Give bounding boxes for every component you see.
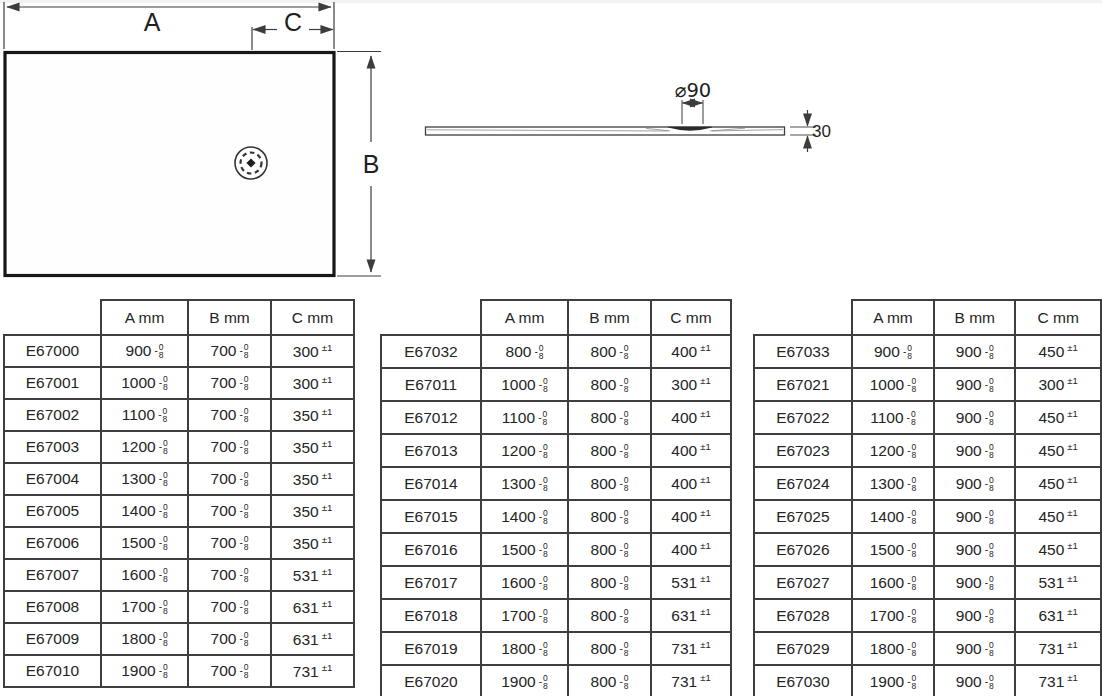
- product-code: E67019: [381, 632, 481, 665]
- dim-c-value: 731±1: [1015, 665, 1101, 696]
- product-code: E67015: [381, 500, 481, 533]
- dim-b-value: 700-08: [188, 623, 271, 655]
- dim-a-value: 1100-08: [481, 401, 568, 434]
- dim-a-value: 900-08: [101, 335, 188, 367]
- dim-a-value: 1200-08: [852, 434, 935, 467]
- dim-a-value: 1500-08: [481, 533, 568, 566]
- column-header: C mm: [651, 300, 731, 335]
- tolerance-plusminus: ±1: [322, 502, 333, 513]
- dim-a-value: 1600-08: [852, 566, 935, 599]
- product-code: E67001: [4, 367, 101, 399]
- tolerance-stack: -08: [619, 608, 628, 624]
- dim-a-value: 1900-08: [481, 665, 568, 696]
- table-row: E670051400-08700-08350±1: [4, 495, 354, 527]
- header-row: A mmB mmC mm: [381, 300, 731, 335]
- table-row: E670081700-08700-08631±1: [4, 591, 354, 623]
- dim-a-value: 1300-08: [481, 467, 568, 500]
- tolerance-plusminus: ±1: [1067, 474, 1078, 485]
- tolerance-stack: -08: [239, 663, 248, 679]
- product-code: E67017: [381, 566, 481, 599]
- tolerance-stack: -08: [985, 608, 994, 624]
- tolerance-plusminus: ±1: [322, 406, 333, 417]
- product-code: E67006: [4, 527, 101, 559]
- dim-b-value: 700-08: [188, 367, 271, 399]
- tolerance-stack: -08: [539, 674, 548, 690]
- table-row: E670101900-08700-08731±1: [4, 655, 354, 687]
- tolerance-plusminus: ±1: [1067, 672, 1078, 683]
- dim-b-value: 800-08: [568, 467, 651, 500]
- dim-b-value: 700-08: [188, 527, 271, 559]
- table-row: E670091800-08700-08631±1: [4, 623, 354, 655]
- dim-a-value: 1000-08: [852, 368, 935, 401]
- dim-a-value: 1500-08: [101, 527, 188, 559]
- dim-b-value: 700-08: [188, 655, 271, 687]
- table-row: E670131200-08800-08400±1: [381, 434, 731, 467]
- dim-a-value: 1800-08: [481, 632, 568, 665]
- dim-c-value: 631±1: [1015, 599, 1101, 632]
- tolerance-stack: -08: [154, 343, 163, 359]
- dim-c-value: 731±1: [651, 632, 731, 665]
- product-code: E67012: [381, 401, 481, 434]
- dim-a-value: 1300-08: [852, 467, 935, 500]
- dim-a-value: 1700-08: [101, 591, 188, 623]
- product-code: E67025: [754, 500, 852, 533]
- product-code: E67023: [754, 434, 852, 467]
- dim-a-value: 1500-08: [852, 533, 935, 566]
- dim-a-value: 1600-08: [101, 559, 188, 591]
- product-code: E67033: [754, 335, 852, 368]
- product-code: E67003: [4, 431, 101, 463]
- dim-c-value: 731±1: [271, 655, 354, 687]
- tolerance-stack: -08: [985, 509, 994, 525]
- tolerance-stack: -08: [158, 407, 167, 423]
- dim-c-value: 400±1: [651, 467, 731, 500]
- dim-a-value: 1900-08: [101, 655, 188, 687]
- tolerance-plusminus: ±1: [700, 408, 711, 419]
- table-row: E670281700-08900-08631±1: [754, 599, 1101, 632]
- tolerance-stack: -08: [907, 641, 916, 657]
- table-row: E670121100-08800-08400±1: [381, 401, 731, 434]
- dim-b-value: 700-08: [188, 399, 271, 431]
- tolerance-plusminus: ±1: [322, 342, 333, 353]
- table-row: E670041300-08700-08350±1: [4, 463, 354, 495]
- tolerance-plusminus: ±1: [322, 534, 333, 545]
- tolerance-plusminus: ±1: [1067, 342, 1078, 353]
- dim-c-value: 450±1: [1015, 500, 1101, 533]
- product-code: E67027: [754, 566, 852, 599]
- tolerance-plusminus: ±1: [700, 672, 711, 683]
- product-code: E67010: [4, 655, 101, 687]
- dim-c-value: 450±1: [1015, 335, 1101, 368]
- size-table-depth-900: A mmB mmC mmE67033900-08900-08450±1E6702…: [753, 299, 1102, 696]
- dimension-lines: [682, 100, 816, 152]
- table-row: E670231200-08900-08450±1: [754, 434, 1101, 467]
- tolerance-stack: -08: [985, 476, 994, 492]
- dim-a-value: 1000-08: [481, 368, 568, 401]
- tolerance-stack: -08: [159, 663, 168, 679]
- tolerance-stack: -08: [159, 375, 168, 391]
- tolerance-plusminus: ±1: [1067, 540, 1078, 551]
- table-row: E670021100-08700-08350±1: [4, 399, 354, 431]
- table-row: E670151400-08800-08400±1: [381, 500, 731, 533]
- dim-c-value: 631±1: [271, 591, 354, 623]
- dimension-table: A mmB mmC mmE67033900-08900-08450±1E6702…: [753, 299, 1102, 696]
- dim-c-value: 531±1: [1015, 566, 1101, 599]
- tolerance-stack: -08: [538, 410, 547, 426]
- tolerance-plusminus: ±1: [700, 606, 711, 617]
- dim-c-value: 450±1: [1015, 467, 1101, 500]
- tray-profile: [426, 127, 785, 135]
- tolerance-plusminus: ±1: [1067, 507, 1078, 518]
- dim-c-value: 450±1: [1015, 434, 1101, 467]
- dim-c-value: 450±1: [1015, 401, 1101, 434]
- dim-a-value: 1200-08: [481, 434, 568, 467]
- tolerance-stack: -08: [985, 575, 994, 591]
- dim-c-value: 350±1: [271, 431, 354, 463]
- tolerance-stack: -08: [539, 641, 548, 657]
- table-row: E670191800-08800-08731±1: [381, 632, 731, 665]
- product-code: E67020: [381, 665, 481, 696]
- dim-b-value: 700-08: [188, 495, 271, 527]
- tolerance-stack: -08: [619, 575, 628, 591]
- dim-c-value: 731±1: [1015, 632, 1101, 665]
- tolerance-plusminus: ±1: [322, 374, 333, 385]
- table-row: E670271600-08900-08531±1: [754, 566, 1101, 599]
- dim-a-value: 800-08: [481, 335, 568, 368]
- tolerance-stack: -08: [907, 476, 916, 492]
- product-code: E67000: [4, 335, 101, 367]
- table-row: E670181700-08800-08631±1: [381, 599, 731, 632]
- table-row: E670291800-08900-08731±1: [754, 632, 1101, 665]
- dim-a-value: 1400-08: [852, 500, 935, 533]
- tolerance-stack: -08: [907, 608, 916, 624]
- tolerance-stack: -08: [159, 439, 168, 455]
- dim-b-value: 800-08: [568, 599, 651, 632]
- tolerance-plusminus: ±1: [322, 470, 333, 481]
- tolerance-stack: -08: [619, 476, 628, 492]
- dim-c-value: 731±1: [651, 665, 731, 696]
- tolerance-plusminus: ±1: [322, 662, 333, 673]
- product-code: E67011: [381, 368, 481, 401]
- table-row: E670111000-08800-08300±1: [381, 368, 731, 401]
- dim-a-value: 1800-08: [852, 632, 935, 665]
- size-table-depth-700: A mmB mmC mmE67000900-08700-08300±1E6700…: [3, 299, 355, 688]
- corner-blank: [381, 300, 481, 335]
- dim-c-value: 400±1: [651, 434, 731, 467]
- tolerance-stack: -08: [619, 377, 628, 393]
- dim-a-value: 900-08: [852, 335, 935, 368]
- dim-a-value: 1600-08: [481, 566, 568, 599]
- dim-c-value: 400±1: [651, 500, 731, 533]
- column-header: C mm: [1015, 300, 1101, 335]
- product-code: E67016: [381, 533, 481, 566]
- tolerance-stack: -08: [239, 375, 248, 391]
- table-row: E670301900-08900-08731±1: [754, 665, 1101, 696]
- dim-c-value: 350±1: [271, 463, 354, 495]
- thickness-label: 30: [812, 122, 831, 141]
- dimension-table: A mmB mmC mmE67000900-08700-08300±1E6700…: [3, 299, 355, 688]
- dim-b-value: 900-08: [934, 566, 1015, 599]
- tolerance-plusminus: ±1: [700, 540, 711, 551]
- product-code: E67029: [754, 632, 852, 665]
- dim-a-value: 1800-08: [101, 623, 188, 655]
- tolerance-stack: -08: [619, 674, 628, 690]
- dim-b-value: 700-08: [188, 335, 271, 367]
- tolerance-plusminus: ±1: [700, 639, 711, 650]
- tolerance-stack: -08: [907, 575, 916, 591]
- tolerance-plusminus: ±1: [1067, 606, 1078, 617]
- tolerance-stack: -08: [539, 542, 548, 558]
- table-row: E670161500-08800-08400±1: [381, 533, 731, 566]
- corner-blank: [4, 300, 101, 335]
- dim-c-value: 400±1: [651, 335, 731, 368]
- tolerance-stack: -08: [907, 509, 916, 525]
- dim-b-value: 700-08: [188, 591, 271, 623]
- tolerance-stack: -08: [159, 535, 168, 551]
- dim-b-value: 700-08: [188, 431, 271, 463]
- dim-b-value: 800-08: [568, 434, 651, 467]
- tolerance-stack: -08: [239, 503, 248, 519]
- tolerance-stack: -08: [619, 641, 628, 657]
- dim-c-value: 450±1: [1015, 533, 1101, 566]
- product-code: E67002: [4, 399, 101, 431]
- table-row: E670221100-08900-08450±1: [754, 401, 1101, 434]
- dim-a-value: 1700-08: [481, 599, 568, 632]
- table-row: E670031200-08700-08350±1: [4, 431, 354, 463]
- tolerance-stack: -08: [539, 608, 548, 624]
- product-code: E67005: [4, 495, 101, 527]
- tolerance-stack: -08: [985, 344, 994, 360]
- corner-blank: [754, 300, 852, 335]
- table-row: E670141300-08800-08400±1: [381, 467, 731, 500]
- tolerance-stack: -08: [159, 471, 168, 487]
- dim-b-value: 700-08: [188, 463, 271, 495]
- tolerance-plusminus: ±1: [322, 598, 333, 609]
- tolerance-plusminus: ±1: [322, 566, 333, 577]
- table-row: E67033900-08900-08450±1: [754, 335, 1101, 368]
- product-code: E67024: [754, 467, 852, 500]
- table-row: E670011000-08700-08300±1: [4, 367, 354, 399]
- table-row: E670261500-08900-08450±1: [754, 533, 1101, 566]
- dim-c-value: 531±1: [271, 559, 354, 591]
- column-header: B mm: [568, 300, 651, 335]
- tolerance-plusminus: ±1: [322, 438, 333, 449]
- product-code: E67021: [754, 368, 852, 401]
- dim-a-value: 1400-08: [101, 495, 188, 527]
- product-code: E67026: [754, 533, 852, 566]
- dim-b-value: 900-08: [934, 335, 1015, 368]
- product-code: E67007: [4, 559, 101, 591]
- tolerance-plusminus: ±1: [700, 507, 711, 518]
- dim-a-value: 1100-08: [852, 401, 935, 434]
- product-code: E67013: [381, 434, 481, 467]
- dim-b-value: 800-08: [568, 533, 651, 566]
- dim-b-value: 900-08: [934, 533, 1015, 566]
- dim-c-value: 300±1: [271, 367, 354, 399]
- tolerance-stack: -08: [539, 509, 548, 525]
- dim-c-value: 631±1: [651, 599, 731, 632]
- tolerance-stack: -08: [907, 674, 916, 690]
- tolerance-stack: -08: [239, 535, 248, 551]
- dim-c-value: 350±1: [271, 527, 354, 559]
- column-header: C mm: [271, 300, 354, 335]
- product-code: E67028: [754, 599, 852, 632]
- table-row: E670171600-08800-08531±1: [381, 566, 731, 599]
- dim-b-value: 900-08: [934, 368, 1015, 401]
- dim-a-value: 1900-08: [852, 665, 935, 696]
- product-code: E67014: [381, 467, 481, 500]
- dim-c-value: 350±1: [271, 495, 354, 527]
- tray-outline: [5, 53, 334, 276]
- dim-label-a: A: [144, 8, 161, 36]
- tolerance-stack: -08: [539, 443, 548, 459]
- dim-b-value: 900-08: [934, 665, 1015, 696]
- tolerance-stack: -08: [985, 641, 994, 657]
- tolerance-stack: -08: [239, 631, 248, 647]
- tolerance-stack: -08: [239, 567, 248, 583]
- dim-c-value: 300±1: [1015, 368, 1101, 401]
- tolerance-stack: -08: [159, 599, 168, 615]
- dim-a-value: 1200-08: [101, 431, 188, 463]
- tolerance-plusminus: ±1: [1067, 408, 1078, 419]
- dim-b-value: 900-08: [934, 401, 1015, 434]
- dim-label-b: B: [363, 150, 380, 178]
- column-header: B mm: [188, 300, 271, 335]
- product-code: E67030: [754, 665, 852, 696]
- drain-symbol: [235, 147, 267, 179]
- tolerance-stack: -08: [534, 344, 543, 360]
- dim-b-value: 700-08: [188, 559, 271, 591]
- tolerance-stack: -08: [907, 542, 916, 558]
- tolerance-stack: -08: [619, 509, 628, 525]
- column-header: A mm: [481, 300, 568, 335]
- drain-diameter-label: ⌀90: [675, 79, 712, 102]
- product-code: E67004: [4, 463, 101, 495]
- dim-c-value: 400±1: [651, 533, 731, 566]
- dim-b-value: 800-08: [568, 335, 651, 368]
- dim-c-value: 400±1: [651, 401, 731, 434]
- dim-a-value: 1100-08: [101, 399, 188, 431]
- table-row: E670251400-08900-08450±1: [754, 500, 1101, 533]
- tolerance-plusminus: ±1: [700, 573, 711, 584]
- dim-b-value: 900-08: [934, 467, 1015, 500]
- header-row: A mmB mmC mm: [754, 300, 1101, 335]
- product-code: E67022: [754, 401, 852, 434]
- tolerance-stack: -08: [985, 377, 994, 393]
- dim-b-value: 900-08: [934, 434, 1015, 467]
- dim-label-c: C: [284, 8, 302, 36]
- tolerance-stack: -08: [159, 503, 168, 519]
- dim-b-value: 800-08: [568, 665, 651, 696]
- tolerance-stack: -08: [239, 599, 248, 615]
- tolerance-stack: -08: [239, 407, 248, 423]
- size-table-depth-800: A mmB mmC mmE67032800-08800-08400±1E6701…: [380, 299, 732, 696]
- dim-b-value: 800-08: [568, 566, 651, 599]
- tolerance-stack: -08: [619, 344, 628, 360]
- tolerance-plusminus: ±1: [700, 474, 711, 485]
- table-row: E670061500-08700-08350±1: [4, 527, 354, 559]
- table-row: E67032800-08800-08400±1: [381, 335, 731, 368]
- dim-b-value: 800-08: [568, 368, 651, 401]
- tolerance-stack: -08: [907, 377, 916, 393]
- column-header: A mm: [101, 300, 188, 335]
- tolerance-plusminus: ±1: [700, 342, 711, 353]
- tolerance-stack: -08: [539, 575, 548, 591]
- dim-b-value: 800-08: [568, 632, 651, 665]
- dim-c-value: 300±1: [271, 335, 354, 367]
- plan-view-drawing: A C B: [0, 0, 400, 290]
- dim-a-value: 1300-08: [101, 463, 188, 495]
- dim-c-value: 350±1: [271, 399, 354, 431]
- dim-a-value: 1400-08: [481, 500, 568, 533]
- tolerance-stack: -08: [985, 410, 994, 426]
- dim-b-value: 800-08: [568, 401, 651, 434]
- product-code: E67008: [4, 591, 101, 623]
- tolerance-stack: -08: [907, 443, 916, 459]
- tolerance-plusminus: ±1: [1067, 441, 1078, 452]
- dim-b-value: 900-08: [934, 599, 1015, 632]
- dim-c-value: 631±1: [271, 623, 354, 655]
- product-code: E67009: [4, 623, 101, 655]
- product-code: E67018: [381, 599, 481, 632]
- tolerance-plusminus: ±1: [1067, 573, 1078, 584]
- tolerance-stack: -08: [159, 631, 168, 647]
- dim-b-value: 800-08: [568, 500, 651, 533]
- tolerance-plusminus: ±1: [1067, 375, 1078, 386]
- tolerance-stack: -08: [539, 476, 548, 492]
- tolerance-stack: -08: [539, 377, 548, 393]
- header-row: A mmB mmC mm: [4, 300, 354, 335]
- column-header: A mm: [852, 300, 935, 335]
- dim-b-value: 900-08: [934, 632, 1015, 665]
- tolerance-plusminus: ±1: [322, 630, 333, 641]
- dim-b-value: 900-08: [934, 500, 1015, 533]
- table-row: E670241300-08900-08450±1: [754, 467, 1101, 500]
- dim-c-value: 300±1: [651, 368, 731, 401]
- tolerance-stack: -08: [985, 542, 994, 558]
- table-row: E670071600-08700-08531±1: [4, 559, 354, 591]
- table-row: E67000900-08700-08300±1: [4, 335, 354, 367]
- tolerance-stack: -08: [619, 410, 628, 426]
- tolerance-plusminus: ±1: [700, 375, 711, 386]
- tolerance-stack: -08: [239, 471, 248, 487]
- dimension-table: A mmB mmC mmE67032800-08800-08400±1E6701…: [380, 299, 732, 696]
- dim-c-value: 531±1: [651, 566, 731, 599]
- table-row: E670201900-08800-08731±1: [381, 665, 731, 696]
- tolerance-stack: -08: [159, 567, 168, 583]
- product-code: E67032: [381, 335, 481, 368]
- shower-tray-spec-sheet: A C B ⌀90: [0, 0, 1102, 696]
- tolerance-plusminus: ±1: [1067, 639, 1078, 650]
- profile-view-drawing: ⌀90 30: [400, 60, 860, 180]
- tolerance-plusminus: ±1: [700, 441, 711, 452]
- tolerance-stack: -08: [985, 443, 994, 459]
- tolerance-stack: -08: [985, 674, 994, 690]
- dim-a-value: 1000-08: [101, 367, 188, 399]
- tolerance-stack: -08: [619, 443, 628, 459]
- column-header: B mm: [934, 300, 1015, 335]
- tolerance-stack: -08: [903, 344, 912, 360]
- tolerance-stack: -08: [907, 410, 916, 426]
- table-row: E670211000-08900-08300±1: [754, 368, 1101, 401]
- tolerance-stack: -08: [239, 439, 248, 455]
- tolerance-stack: -08: [619, 542, 628, 558]
- tolerance-stack: -08: [239, 343, 248, 359]
- dim-a-value: 1700-08: [852, 599, 935, 632]
